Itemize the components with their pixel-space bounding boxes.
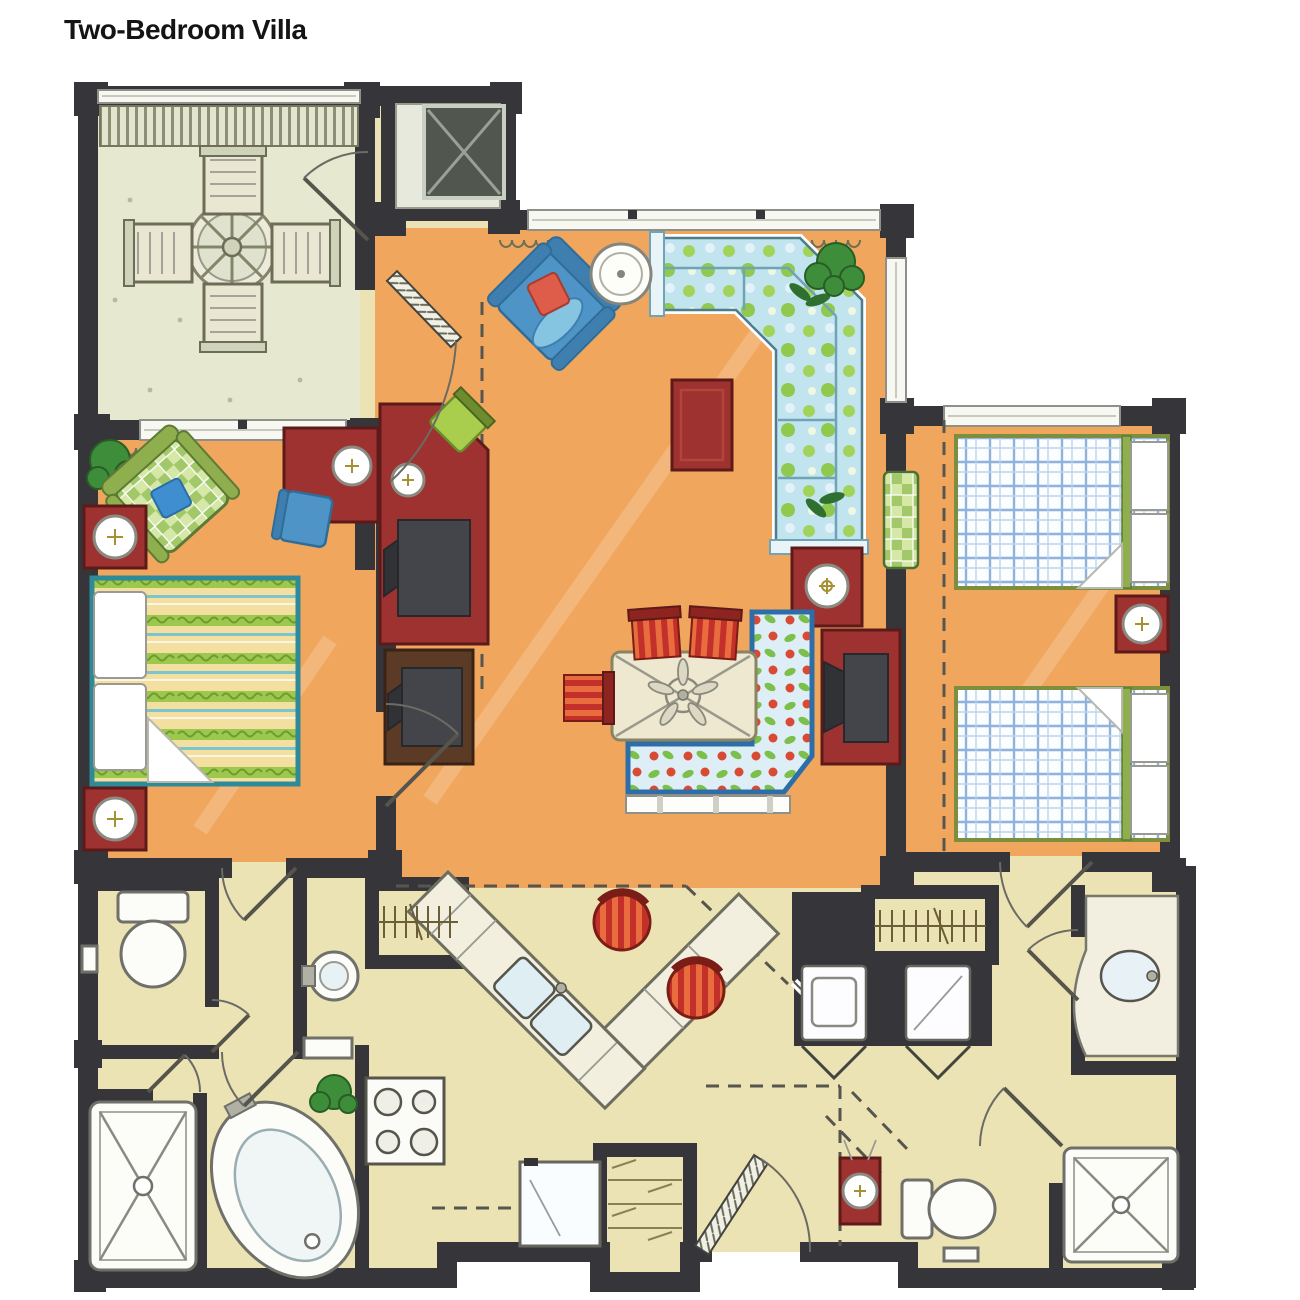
pillow: [1131, 514, 1168, 582]
vanity-bath2: [1074, 896, 1178, 1056]
paper-holder: [82, 946, 97, 972]
bar-stool: [594, 892, 650, 950]
tv-icon: [398, 520, 470, 616]
corner-desk-unit: [380, 387, 495, 644]
patio-chair: [200, 146, 266, 214]
burner-icon: [375, 1089, 401, 1115]
pillow: [1131, 694, 1168, 762]
desk-chair-blue: [271, 489, 333, 548]
round-side-table: [591, 244, 651, 304]
dining-chair: [564, 672, 614, 724]
burner-icon: [411, 1129, 437, 1155]
drain-icon: [134, 1177, 152, 1195]
dining-table: [612, 652, 756, 740]
headboard: [1122, 436, 1131, 588]
refrigerator: [520, 1158, 600, 1246]
floor-plan-page: Two-Bedroom Villa: [0, 0, 1300, 1300]
tv-icon: [844, 654, 888, 742]
banquette-base: [626, 796, 790, 813]
window-balcony-rail: [98, 90, 360, 103]
burner-icon: [377, 1131, 399, 1153]
pergola-slats: [100, 106, 358, 146]
shower-master: [90, 1102, 196, 1270]
pillow: [1131, 442, 1168, 510]
nightstand-master-1: [84, 506, 146, 568]
patio-chair: [124, 220, 192, 286]
window-bedroom2-top: [944, 406, 1120, 426]
bath-shelf: [304, 1038, 352, 1058]
nightstand-master-2: [84, 788, 146, 850]
patio-table-with-umbrella: [188, 203, 276, 291]
patio-chair: [272, 220, 340, 286]
window-living-top: [528, 210, 880, 230]
pillow: [94, 684, 146, 770]
dining-chair: [687, 606, 742, 660]
pillow: [1131, 766, 1168, 834]
burner-icon: [413, 1091, 435, 1113]
headboard: [1122, 688, 1131, 840]
floor-plan-canvas: [0, 0, 1300, 1300]
faucet-icon: [1147, 971, 1157, 981]
patio-chair: [200, 284, 266, 352]
master-bed: [92, 578, 298, 784]
pillow: [94, 592, 146, 678]
dining-chair: [628, 606, 683, 660]
green-wall-bench: [884, 472, 918, 568]
bar-stool: [668, 960, 724, 1018]
shower-bath2: [1064, 1148, 1178, 1262]
fridge-handle: [524, 1158, 538, 1166]
bed2-a: [956, 436, 1168, 588]
paper-holder: [944, 1248, 978, 1261]
range-stove: [366, 1078, 444, 1164]
bed2-b: [956, 688, 1168, 840]
media-console: [822, 630, 900, 764]
utility-shaft: [396, 104, 504, 208]
window-living-right: [886, 258, 906, 402]
drain-icon: [1113, 1197, 1129, 1213]
tv-cabinet-brown: [385, 650, 473, 764]
nightstand-bed2: [1116, 596, 1168, 652]
